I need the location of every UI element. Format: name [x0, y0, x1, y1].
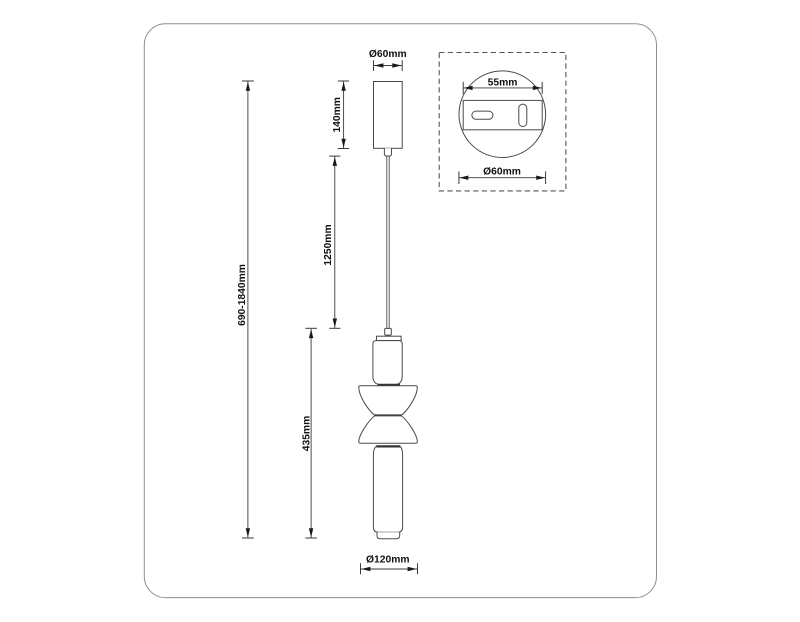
- svg-text:55mm: 55mm: [488, 78, 518, 89]
- svg-text:Ø60mm: Ø60mm: [369, 49, 407, 60]
- svg-text:Ø60mm: Ø60mm: [483, 167, 521, 178]
- svg-text:690-1840mm: 690-1840mm: [237, 264, 248, 326]
- svg-text:140mm: 140mm: [332, 97, 343, 133]
- svg-text:Ø120mm: Ø120mm: [366, 555, 410, 566]
- svg-text:1250mm: 1250mm: [323, 224, 334, 265]
